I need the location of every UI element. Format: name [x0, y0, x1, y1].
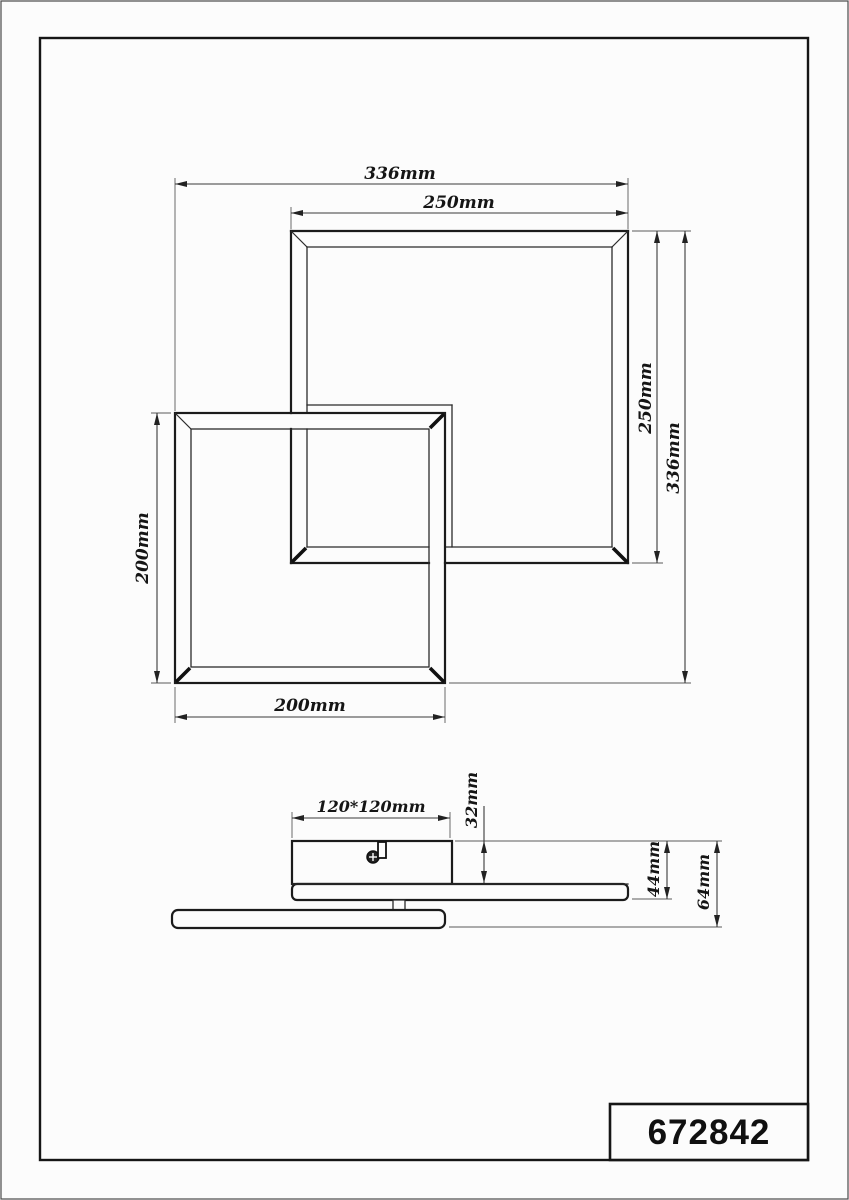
side-view: 120*120mm 32mm 44mm 64mm [172, 772, 722, 928]
dim-upper-depth: 44mm [632, 841, 672, 899]
lower-frame-plate [172, 910, 445, 928]
dimension-label: 44mm [644, 841, 663, 897]
upper-frame-plate [292, 884, 628, 900]
inner-square [191, 429, 429, 667]
part-number: 672842 [648, 1113, 771, 1152]
miter-bottom-right [430, 668, 444, 682]
bracket [378, 842, 386, 858]
miter-top-left [291, 231, 307, 247]
miter-bottom-left [176, 668, 190, 682]
miter-bottom-left [292, 548, 306, 562]
small-frame [175, 413, 445, 683]
dim-large-width: 250mm [291, 193, 628, 229]
plate-connector [393, 900, 405, 910]
miter-top-right [612, 231, 628, 247]
title-block: 672842 [610, 1104, 808, 1160]
dimension-label: 200mm [133, 512, 153, 584]
dim-small-height: 200mm [133, 413, 171, 683]
dim-large-height: 250mm [632, 231, 691, 563]
dim-canopy-height: 32mm [455, 772, 722, 883]
miter-top-right [430, 414, 444, 428]
dim-canopy: 120*120mm [292, 797, 450, 838]
dimension-label: 32mm [462, 772, 481, 828]
dim-total-height: 336mm [449, 231, 691, 683]
dimension-label: 64mm [694, 854, 713, 910]
outer-square [175, 413, 445, 683]
dim-total-width: 336mm [175, 164, 628, 411]
dim-small-width: 200mm [175, 687, 445, 723]
dimension-label: 336mm [664, 422, 684, 493]
dimension-label: 200mm [273, 696, 345, 716]
large-frame [291, 231, 628, 563]
top-view: 336mm 250mm 250mm 336mm 200mm [133, 164, 691, 723]
technical-drawing: 336mm 250mm 250mm 336mm 200mm [0, 0, 849, 1200]
dimension-label: 120*120mm [316, 797, 425, 816]
dimension-label: 336mm [364, 164, 435, 184]
miter-top-left [175, 413, 191, 429]
dimension-label: 250mm [636, 362, 656, 434]
drawing-sheet: 336mm 250mm 250mm 336mm 200mm [0, 0, 849, 1200]
miter-bottom-right [613, 548, 627, 562]
dimension-label: 250mm [422, 193, 494, 213]
